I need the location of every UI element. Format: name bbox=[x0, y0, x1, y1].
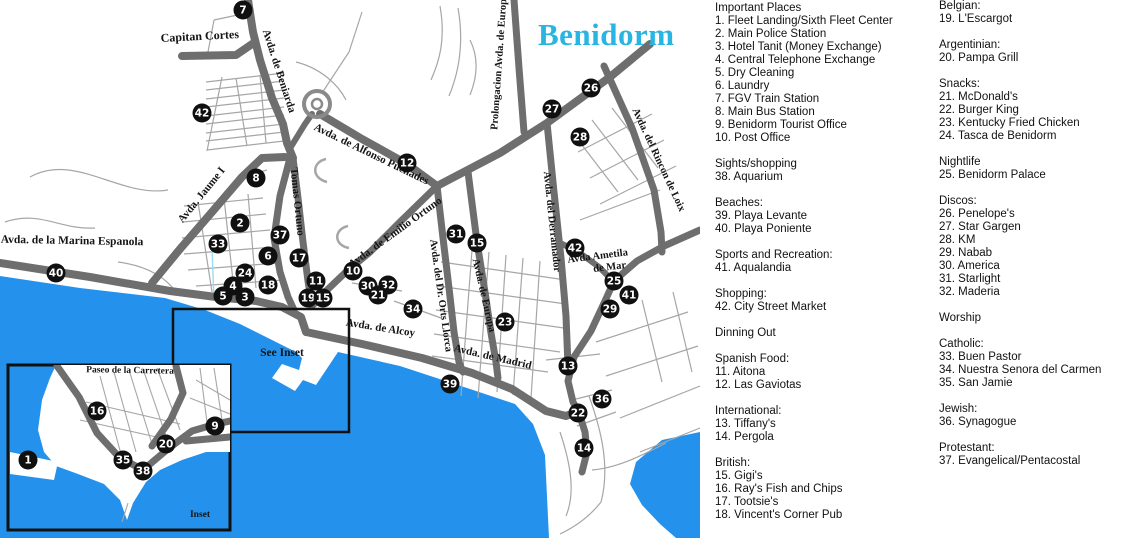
marker-number: 2 bbox=[236, 218, 243, 230]
legend-item: 24. Tasca de Benidorm bbox=[939, 130, 1143, 143]
legend-item: 2. Main Police Station bbox=[715, 28, 931, 41]
map-marker-3: 3 bbox=[236, 288, 255, 307]
legend-section: Worship bbox=[939, 312, 1143, 325]
marker-number: 5 bbox=[219, 291, 226, 303]
marker-number: 25 bbox=[607, 276, 622, 288]
legend-heading: Belgian: bbox=[939, 0, 1143, 13]
see-inset-label: See Inset bbox=[260, 347, 304, 359]
inset-map: Inset bbox=[8, 365, 230, 530]
map-marker-1: 1 bbox=[19, 451, 38, 470]
legend-item: 26. Penelope's bbox=[939, 208, 1143, 221]
map-marker-8: 8 bbox=[247, 169, 266, 188]
legend-section: Discos:26. Penelope's27. Star Gargen28. … bbox=[939, 195, 1143, 299]
map-marker-37: 37 bbox=[271, 226, 290, 245]
legend-heading: Important Places bbox=[715, 2, 931, 15]
legend-item: 22. Burger King bbox=[939, 104, 1143, 117]
legend-heading: Discos: bbox=[939, 195, 1143, 208]
map-marker-16: 16 bbox=[88, 402, 107, 421]
marker-number: 3 bbox=[241, 292, 248, 304]
legend-item: 32. Maderia bbox=[939, 286, 1143, 299]
map-marker-33: 33 bbox=[209, 235, 228, 254]
legend-section: Argentinian:20. Pampa Grill bbox=[939, 39, 1143, 65]
legend-item: 36. Synagogue bbox=[939, 416, 1143, 429]
legend-item: 30. America bbox=[939, 260, 1143, 273]
legend-item: 4. Central Telephone Exchange bbox=[715, 54, 931, 67]
legend-section: Snacks:21. McDonald's22. Burger King23. … bbox=[939, 78, 1143, 143]
map-marker-2: 2 bbox=[231, 214, 250, 233]
map-marker-28: 28 bbox=[571, 128, 590, 147]
map-marker-14: 14 bbox=[575, 439, 594, 458]
marker-number: 42 bbox=[568, 243, 583, 255]
legend-item: 9. Benidorm Tourist Office bbox=[715, 119, 931, 132]
marker-number: 1 bbox=[24, 455, 31, 467]
legend-section: British:15. Gigi's16. Ray's Fish and Chi… bbox=[715, 457, 931, 522]
map-marker-9: 9 bbox=[206, 417, 225, 436]
marker-number: 14 bbox=[577, 443, 592, 455]
legend-item: 6. Laundry bbox=[715, 80, 931, 93]
legend-item: 16. Ray's Fish and Chips bbox=[715, 483, 931, 496]
marker-number: 11 bbox=[309, 276, 324, 288]
marker-number: 15 bbox=[316, 293, 331, 305]
map-marker-6: 6 bbox=[259, 247, 278, 266]
map-marker-21: 21 bbox=[369, 286, 388, 305]
legend-item: 35. San Jamie bbox=[939, 377, 1143, 390]
marker-number: 12 bbox=[400, 158, 415, 170]
legend-item: 38. Aquarium bbox=[715, 171, 931, 184]
legend-heading: Worship bbox=[939, 312, 1143, 325]
legend-section: Beaches:39. Playa Levante40. Playa Ponie… bbox=[715, 197, 931, 236]
legend-section: Jewish:36. Synagogue bbox=[939, 403, 1143, 429]
benidorm-map-page: See Inset Inset Capitan CortesAvda. de B… bbox=[0, 0, 1143, 538]
marker-number: 42 bbox=[195, 108, 210, 120]
map-marker-12: 12 bbox=[398, 154, 417, 173]
marker-number: 19 bbox=[301, 293, 316, 305]
legend-heading: Catholic: bbox=[939, 338, 1143, 351]
legend-item: 15. Gigi's bbox=[715, 470, 931, 483]
marker-number: 23 bbox=[498, 317, 513, 329]
marker-number: 15 bbox=[470, 238, 485, 250]
marker-number: 21 bbox=[371, 290, 386, 302]
legend-item: 11. Aitona bbox=[715, 366, 931, 379]
legend-item: 41. Aqualandia bbox=[715, 262, 931, 275]
legend-heading: Nightlife bbox=[939, 156, 1143, 169]
marker-number: 29 bbox=[603, 304, 618, 316]
legend-item: 33. Buen Pastor bbox=[939, 351, 1143, 364]
map-marker-39: 39 bbox=[441, 375, 460, 394]
inset-label: Inset bbox=[190, 510, 211, 520]
marker-number: 24 bbox=[238, 268, 253, 280]
map-marker-11: 11 bbox=[307, 272, 326, 291]
map-title: Benidorm bbox=[538, 17, 675, 52]
marker-number: 17 bbox=[292, 253, 307, 265]
map-marker-42: 42 bbox=[193, 104, 212, 123]
marker-number: 22 bbox=[571, 408, 586, 420]
legend-heading: Protestant: bbox=[939, 442, 1143, 455]
legend-item: 20. Pampa Grill bbox=[939, 52, 1143, 65]
legend-heading: Sights/shopping bbox=[715, 158, 931, 171]
legend-heading: Argentinian: bbox=[939, 39, 1143, 52]
map-marker-26: 26 bbox=[582, 79, 601, 98]
map-marker-23: 23 bbox=[496, 313, 515, 332]
legend-item: 29. Nabab bbox=[939, 247, 1143, 260]
map-marker-5: 5 bbox=[214, 287, 233, 306]
legend-heading: Shopping: bbox=[715, 288, 931, 301]
map-marker-18: 18 bbox=[259, 276, 278, 295]
marker-number: 26 bbox=[584, 83, 599, 95]
map-marker-34: 34 bbox=[404, 300, 423, 319]
marker-number: 6 bbox=[264, 251, 271, 263]
map-marker-15: 15 bbox=[468, 234, 487, 253]
legend-heading: Dinning Out bbox=[715, 327, 931, 340]
marker-number: 13 bbox=[561, 361, 576, 373]
legend-column-left: Important Places1. Fleet Landing/Sixth F… bbox=[715, 2, 931, 535]
map-marker-22: 22 bbox=[569, 404, 588, 423]
marker-number: 35 bbox=[116, 455, 131, 467]
road-label: Avda. de la Marina Espanola bbox=[1, 234, 144, 248]
legend-item: 39. Playa Levante bbox=[715, 210, 931, 223]
legend-item: 10. Post Office bbox=[715, 132, 931, 145]
road-label: Paseo de la Carretera bbox=[86, 365, 174, 377]
legend-item: 21. McDonald's bbox=[939, 91, 1143, 104]
legend-section: International:13. Tiffany's14. Pergola bbox=[715, 405, 931, 444]
legend-section: Spanish Food:11. Aitona12. Las Gaviotas bbox=[715, 353, 931, 392]
city-map: See Inset Inset Capitan CortesAvda. de B… bbox=[0, 0, 700, 538]
map-marker-25: 25 bbox=[605, 272, 624, 291]
marker-number: 36 bbox=[595, 394, 610, 406]
legend-item: 37. Evangelical/Pentacostal bbox=[939, 455, 1143, 468]
legend-section: Sights/shopping38. Aquarium bbox=[715, 158, 931, 184]
legend-item: 40. Playa Poniente bbox=[715, 223, 931, 236]
marker-number: 10 bbox=[346, 266, 361, 278]
legend-item: 1. Fleet Landing/Sixth Fleet Center bbox=[715, 15, 931, 28]
map-marker-36: 36 bbox=[593, 390, 612, 409]
map-marker-15: 15 bbox=[314, 289, 333, 308]
marker-number: 28 bbox=[573, 132, 588, 144]
marker-number: 18 bbox=[261, 280, 276, 292]
legend-item: 13. Tiffany's bbox=[715, 418, 931, 431]
map-marker-41: 41 bbox=[620, 286, 639, 305]
marker-number: 9 bbox=[211, 421, 218, 433]
map-marker-35: 35 bbox=[114, 451, 133, 470]
legend-heading: International: bbox=[715, 405, 931, 418]
legend-item: 12. Las Gaviotas bbox=[715, 379, 931, 392]
legend-section: Catholic:33. Buen Pastor34. Nuestra Seno… bbox=[939, 338, 1143, 390]
legend-item: 23. Kentucky Fried Chicken bbox=[939, 117, 1143, 130]
legend-heading: Beaches: bbox=[715, 197, 931, 210]
map-marker-7: 7 bbox=[234, 1, 253, 20]
marker-number: 34 bbox=[406, 304, 421, 316]
legend-item: 34. Nuestra Senora del Carmen bbox=[939, 364, 1143, 377]
map-marker-38: 38 bbox=[134, 462, 153, 481]
marker-number: 41 bbox=[622, 290, 637, 302]
marker-number: 38 bbox=[136, 466, 151, 478]
legend-item: 5. Dry Cleaning bbox=[715, 67, 931, 80]
legend-section: Sports and Recreation:41. Aqualandia bbox=[715, 249, 931, 275]
legend-item: 25. Benidorm Palace bbox=[939, 169, 1143, 182]
map-marker-20: 20 bbox=[157, 435, 176, 454]
marker-number: 39 bbox=[443, 379, 458, 391]
legend-section: Protestant:37. Evangelical/Pentacostal bbox=[939, 442, 1143, 468]
map-marker-17: 17 bbox=[290, 249, 309, 268]
legend-column-right: Belgian:19. L'EscargotArgentinian:20. Pa… bbox=[939, 0, 1143, 481]
legend-section: Dinning Out bbox=[715, 327, 931, 340]
map-marker-10: 10 bbox=[344, 262, 363, 281]
legend-heading: Spanish Food: bbox=[715, 353, 931, 366]
marker-number: 20 bbox=[159, 439, 174, 451]
legend-item: 18. Vincent's Corner Pub bbox=[715, 509, 931, 522]
map-marker-40: 40 bbox=[47, 264, 66, 283]
marker-number: 40 bbox=[49, 268, 64, 280]
legend-section: Nightlife25. Benidorm Palace bbox=[939, 156, 1143, 182]
marker-number: 8 bbox=[252, 173, 259, 185]
legend-item: 42. City Street Market bbox=[715, 301, 931, 314]
legend-item: 28. KM bbox=[939, 234, 1143, 247]
map-marker-27: 27 bbox=[543, 100, 562, 119]
map-marker-13: 13 bbox=[559, 357, 578, 376]
legend-heading: Snacks: bbox=[939, 78, 1143, 91]
marker-number: 31 bbox=[449, 229, 464, 241]
legend-heading: Sports and Recreation: bbox=[715, 249, 931, 262]
legend-item: 7. FGV Train Station bbox=[715, 93, 931, 106]
marker-number: 16 bbox=[90, 406, 105, 418]
legend-item: 19. L'Escargot bbox=[939, 13, 1143, 26]
map-marker-29: 29 bbox=[601, 300, 620, 319]
marker-number: 7 bbox=[239, 5, 246, 17]
legend-item: 31. Starlight bbox=[939, 273, 1143, 286]
legend-section: Shopping:42. City Street Market bbox=[715, 288, 931, 314]
legend-item: 17. Tootsie's bbox=[715, 496, 931, 509]
legend-section: Important Places1. Fleet Landing/Sixth F… bbox=[715, 2, 931, 145]
legend-heading: Jewish: bbox=[939, 403, 1143, 416]
legend-item: 14. Pergola bbox=[715, 431, 931, 444]
legend-heading: British: bbox=[715, 457, 931, 470]
marker-number: 37 bbox=[273, 230, 288, 242]
marker-number: 33 bbox=[211, 239, 226, 251]
map-marker-31: 31 bbox=[447, 225, 466, 244]
map-marker-42: 42 bbox=[566, 239, 585, 258]
legend-section: Belgian:19. L'Escargot bbox=[939, 0, 1143, 26]
legend-item: 8. Main Bus Station bbox=[715, 106, 931, 119]
legend-item: 3. Hotel Tanit (Money Exchange) bbox=[715, 41, 931, 54]
legend-item: 27. Star Gargen bbox=[939, 221, 1143, 234]
marker-number: 27 bbox=[545, 104, 560, 116]
